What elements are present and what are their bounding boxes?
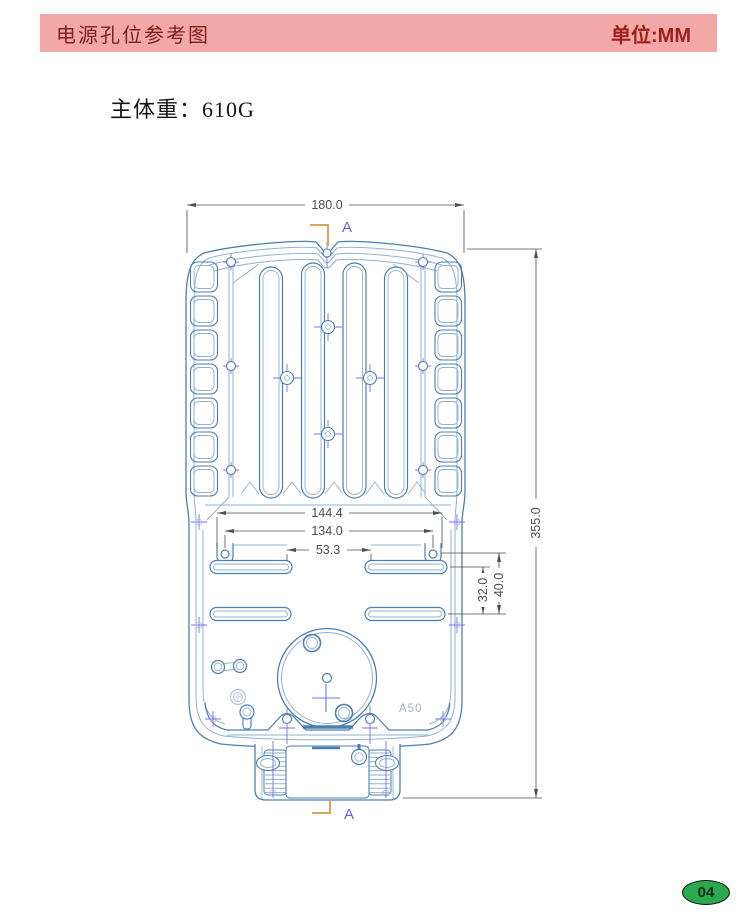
dim-slot-inner-gap: 53.3 [316,543,340,557]
model-label: A50 [399,703,422,715]
pole-bracket [255,741,400,800]
spec-sheet-page: 电源孔位参考图 单位:MM 主体重：610G [0,0,750,919]
dim-row-spacing: 32.0 [476,578,490,602]
technical-drawing: 180.0 355.0 144.4 134.0 53.3 32.0 40.0 [0,0,750,919]
page-number-badge: 04 [682,880,730,905]
dim-overall-width: 180.0 [311,198,342,212]
dim-mount-width-outer: 144.4 [311,506,342,520]
housing-outline [186,241,465,747]
page-number: 04 [698,884,715,901]
dim-mount-width-inner: 134.0 [311,524,342,538]
dim-overall-height: 355.0 [529,507,543,538]
dim-row-to-hole: 40.0 [492,573,506,597]
section-cut-bottom [312,799,330,813]
section-letter-bottom: A [344,806,354,823]
section-letter-top: A [342,219,352,236]
